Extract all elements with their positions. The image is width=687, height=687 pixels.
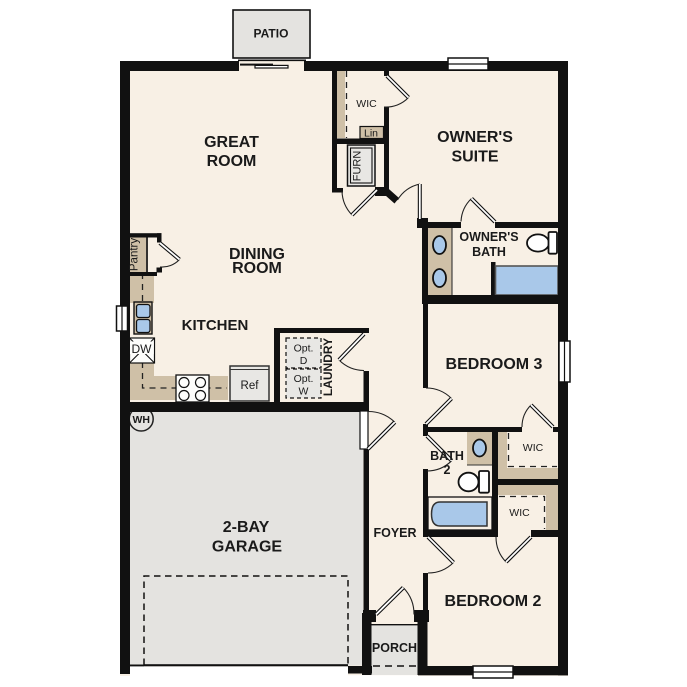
svg-text:WIC: WIC — [523, 442, 544, 454]
svg-text:Opt.: Opt. — [294, 373, 314, 385]
svg-text:Opt.: Opt. — [294, 343, 314, 355]
svg-text:Pantry: Pantry — [129, 238, 141, 271]
svg-text:KITCHEN: KITCHEN — [182, 317, 249, 334]
svg-text:OWNER'S: OWNER'S — [459, 230, 518, 244]
svg-text:BATH: BATH — [430, 449, 464, 463]
svg-text:FOYER: FOYER — [373, 526, 416, 540]
svg-text:WIC: WIC — [356, 98, 377, 110]
svg-text:ROOM: ROOM — [207, 153, 257, 170]
svg-text:SUITE: SUITE — [451, 149, 498, 166]
svg-text:PATIO: PATIO — [254, 27, 289, 41]
svg-text:D: D — [300, 355, 308, 367]
svg-text:FURN: FURN — [352, 151, 364, 182]
svg-text:WH: WH — [132, 414, 150, 426]
svg-text:LAUNDRY: LAUNDRY — [321, 338, 335, 396]
svg-text:GREAT: GREAT — [204, 134, 259, 151]
svg-text:PORCH: PORCH — [372, 641, 417, 655]
svg-text:BEDROOM 2: BEDROOM 2 — [445, 593, 542, 610]
svg-text:WIC: WIC — [509, 507, 530, 519]
svg-text:ROOM: ROOM — [232, 260, 282, 277]
svg-text:DW: DW — [132, 342, 153, 356]
svg-text:Ref: Ref — [241, 380, 260, 392]
svg-text:2: 2 — [444, 463, 451, 477]
svg-text:BEDROOM 3: BEDROOM 3 — [446, 356, 543, 373]
svg-text:Lin: Lin — [364, 128, 378, 140]
svg-text:BATH: BATH — [472, 245, 506, 259]
svg-text:2-BAY: 2-BAY — [223, 519, 270, 536]
svg-text:OWNER'S: OWNER'S — [437, 129, 513, 146]
svg-text:W: W — [299, 386, 309, 398]
svg-text:GARAGE: GARAGE — [212, 539, 283, 556]
